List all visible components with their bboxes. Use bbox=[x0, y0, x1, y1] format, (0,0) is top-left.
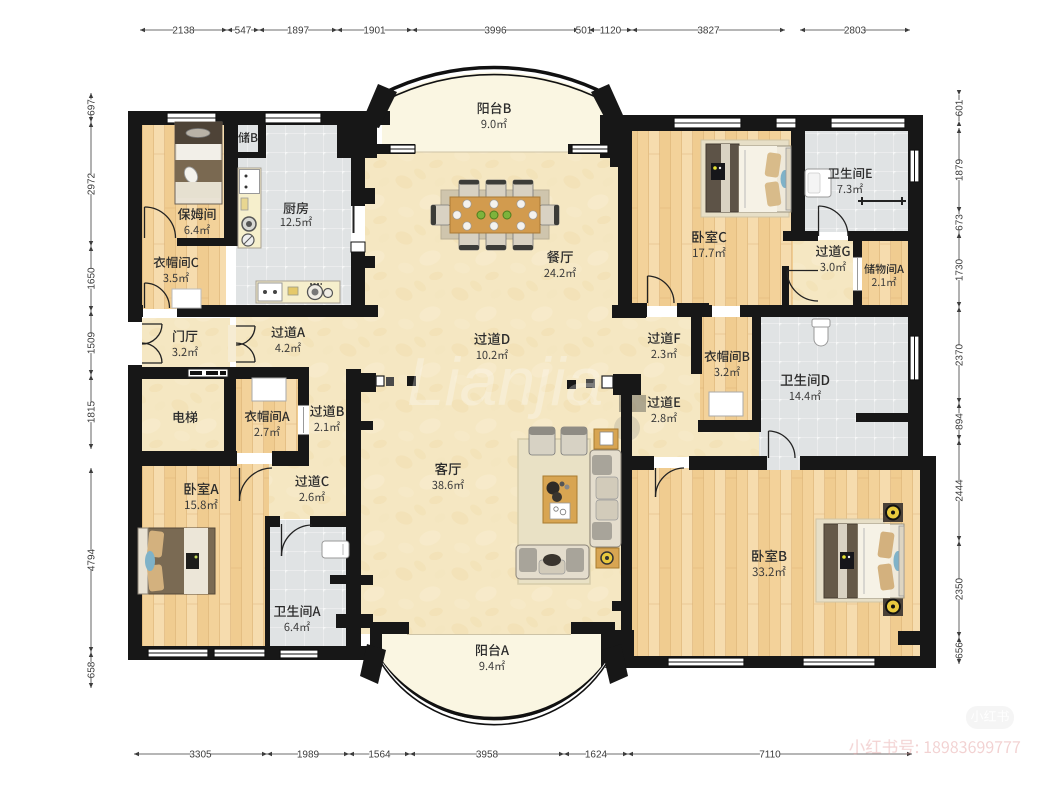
svg-text:547: 547 bbox=[235, 25, 252, 36]
svg-text:1989: 1989 bbox=[297, 749, 320, 760]
svg-text:1815: 1815 bbox=[86, 400, 97, 423]
svg-text:656: 656 bbox=[954, 642, 965, 659]
svg-text:2350: 2350 bbox=[954, 577, 965, 600]
svg-text:1120: 1120 bbox=[600, 25, 622, 36]
svg-text:2444: 2444 bbox=[954, 479, 965, 502]
svg-text:658: 658 bbox=[86, 661, 97, 678]
svg-text:1624: 1624 bbox=[585, 749, 608, 760]
svg-text:3305: 3305 bbox=[189, 749, 212, 760]
svg-text:2370: 2370 bbox=[954, 343, 965, 366]
svg-text:2803: 2803 bbox=[844, 25, 867, 36]
svg-text:697: 697 bbox=[86, 99, 97, 116]
svg-text:Lianjia: Lianjia bbox=[407, 344, 604, 420]
svg-text:601: 601 bbox=[954, 99, 965, 116]
svg-text:2138: 2138 bbox=[172, 25, 195, 36]
svg-text:1650: 1650 bbox=[86, 267, 97, 290]
svg-text:1901: 1901 bbox=[363, 25, 386, 36]
svg-text:1897: 1897 bbox=[287, 25, 310, 36]
svg-text:1879: 1879 bbox=[954, 158, 965, 181]
svg-text:7110: 7110 bbox=[759, 749, 781, 760]
svg-text:501: 501 bbox=[576, 25, 593, 36]
svg-text:1564: 1564 bbox=[368, 749, 391, 760]
svg-text:3958: 3958 bbox=[476, 749, 499, 760]
svg-text:3996: 3996 bbox=[484, 25, 507, 36]
svg-text:2972: 2972 bbox=[86, 172, 97, 195]
svg-text:3827: 3827 bbox=[697, 25, 720, 36]
svg-text:4794: 4794 bbox=[86, 548, 97, 571]
svg-text:673: 673 bbox=[954, 214, 965, 231]
svg-text:894: 894 bbox=[954, 413, 965, 430]
svg-text:1509: 1509 bbox=[86, 331, 97, 354]
svg-text:1730: 1730 bbox=[954, 258, 965, 281]
